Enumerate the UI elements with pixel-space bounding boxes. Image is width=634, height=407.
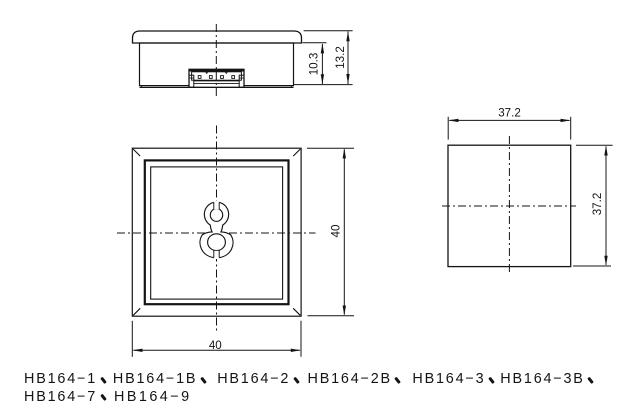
- svg-text:13.2: 13.2: [334, 46, 347, 69]
- svg-text:37.2: 37.2: [498, 107, 521, 120]
- svg-text:40: 40: [209, 339, 222, 352]
- svg-text:10.3: 10.3: [308, 53, 321, 76]
- svg-text:37.2: 37.2: [591, 193, 604, 216]
- svg-text:40: 40: [330, 225, 343, 238]
